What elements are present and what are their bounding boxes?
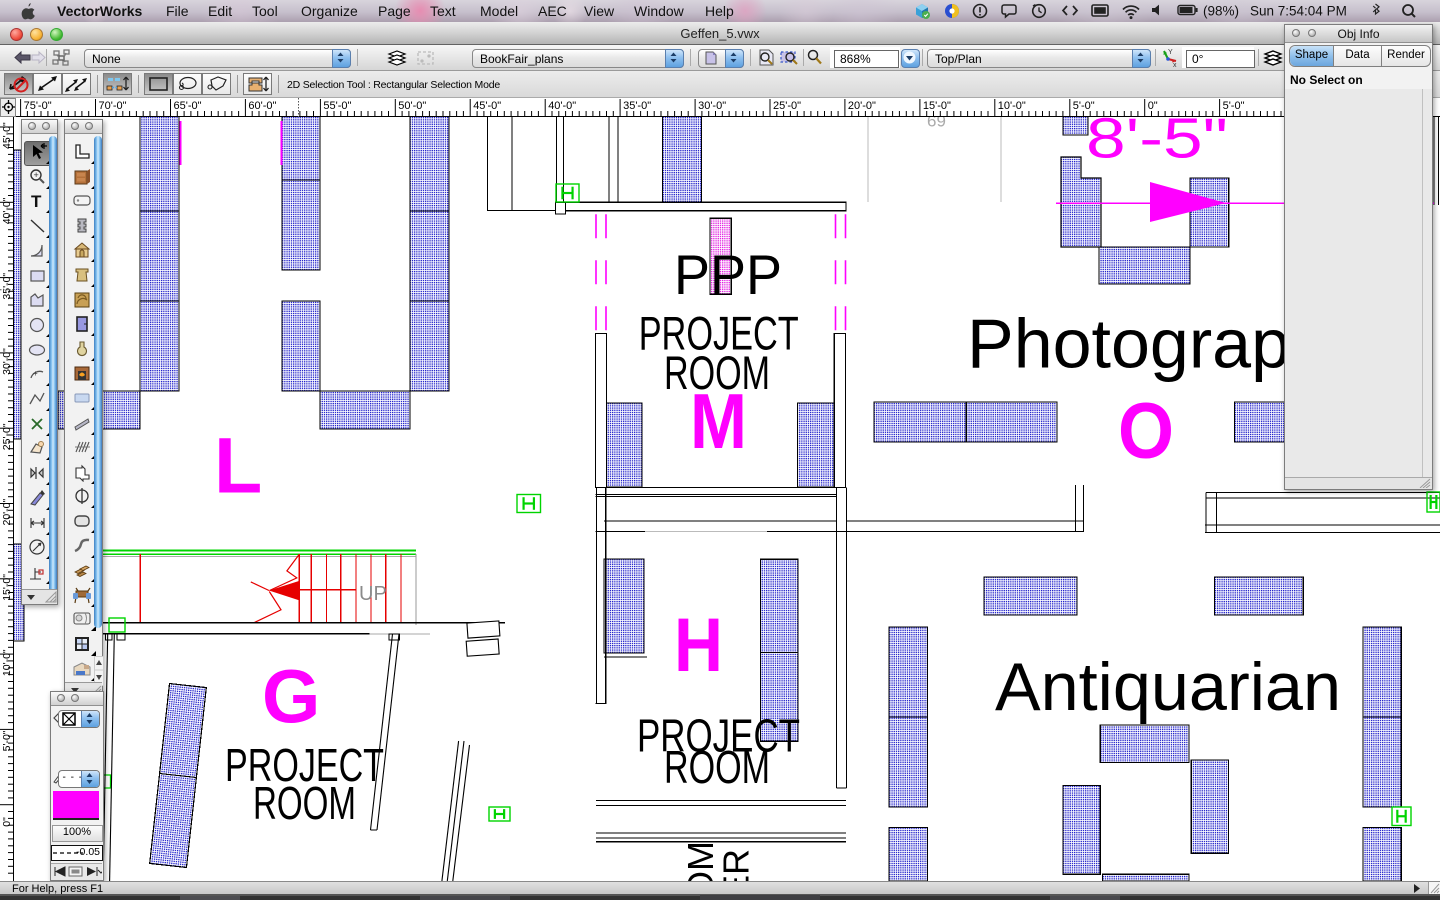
svg-text:30'-0": 30'-0" [698, 100, 726, 112]
svg-text:50'-0": 50'-0" [398, 100, 426, 112]
svg-text:25'-0": 25'-0" [1, 423, 13, 450]
svg-text:G: G [262, 655, 320, 739]
svg-text:25'-0": 25'-0" [773, 100, 801, 112]
svg-text:75'-0": 75'-0" [24, 100, 52, 112]
svg-text:55'-0": 55'-0" [323, 100, 351, 112]
svg-text:65'-0": 65'-0" [174, 100, 202, 112]
svg-text:40'-0": 40'-0" [548, 100, 576, 112]
svg-text:5'-0": 5'-0" [1, 730, 13, 751]
svg-text:Photograph: Photograph [967, 305, 1329, 383]
svg-text:70'-0": 70'-0" [99, 100, 127, 112]
svg-text:UP: UP [359, 583, 387, 605]
svg-text:Sun 7:54:04 PM: Sun 7:54:04 PM [1250, 4, 1347, 19]
svg-text:Y: Y [1168, 49, 1173, 56]
svg-text:40'-0": 40'-0" [1, 197, 13, 224]
svg-text:10'-0": 10'-0" [1, 649, 13, 676]
svg-text:35'-0": 35'-0" [1, 273, 13, 300]
svg-text:45'-0": 45'-0" [1, 122, 13, 149]
svg-text:L: L [214, 421, 262, 510]
svg-text:(98%): (98%) [1203, 4, 1239, 19]
svg-text:5'-0": 5'-0" [1223, 100, 1245, 112]
svg-text:Antiquarian: Antiquarian [995, 649, 1341, 725]
svg-text:20'-0": 20'-0" [848, 100, 876, 112]
svg-text:ROOM: ROOM [253, 777, 356, 829]
svg-text:PPP: PPP [674, 243, 782, 306]
svg-text:60'-0": 60'-0" [248, 100, 276, 112]
svg-text:M: M [690, 377, 747, 465]
svg-text:+: + [33, 170, 38, 180]
svg-text:15'-0": 15'-0" [1, 574, 13, 601]
svg-text:x: x [1173, 62, 1177, 68]
svg-text:ROOM: ROOM [664, 741, 770, 793]
svg-text:O: O [1118, 386, 1174, 475]
svg-text:15'-0": 15'-0" [923, 100, 951, 112]
svg-text:30'-0": 30'-0" [1, 348, 13, 375]
svg-text:5'-0": 5'-0" [1073, 100, 1095, 112]
svg-text:10'-0": 10'-0" [998, 100, 1026, 112]
svg-text:H: H [674, 603, 723, 688]
svg-text:20'-0": 20'-0" [1, 498, 13, 525]
svg-text:+: + [33, 369, 38, 378]
svg-text:35'-0": 35'-0" [623, 100, 651, 112]
svg-text:T: T [31, 192, 42, 211]
svg-text:45'-0": 45'-0" [473, 100, 501, 112]
svg-text:0": 0" [1148, 100, 1158, 112]
